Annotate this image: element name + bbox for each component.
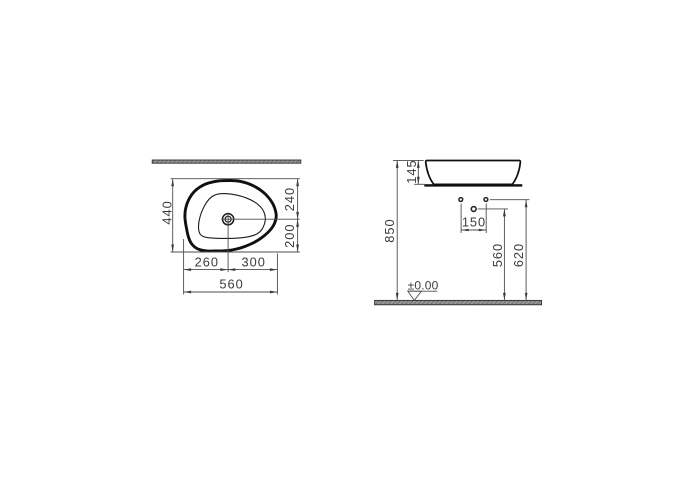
svg-text:260: 260: [195, 254, 219, 269]
svg-text:240: 240: [282, 187, 297, 211]
svg-text:560: 560: [219, 277, 243, 292]
svg-text:560: 560: [490, 243, 505, 267]
svg-text:200: 200: [282, 224, 297, 248]
svg-text:145: 145: [404, 159, 419, 183]
svg-text:850: 850: [382, 218, 397, 242]
svg-text:620: 620: [511, 243, 526, 267]
svg-text:300: 300: [242, 254, 266, 269]
svg-text:±0.00: ±0.00: [408, 279, 439, 293]
svg-text:440: 440: [159, 200, 174, 224]
svg-text:150: 150: [462, 215, 486, 230]
